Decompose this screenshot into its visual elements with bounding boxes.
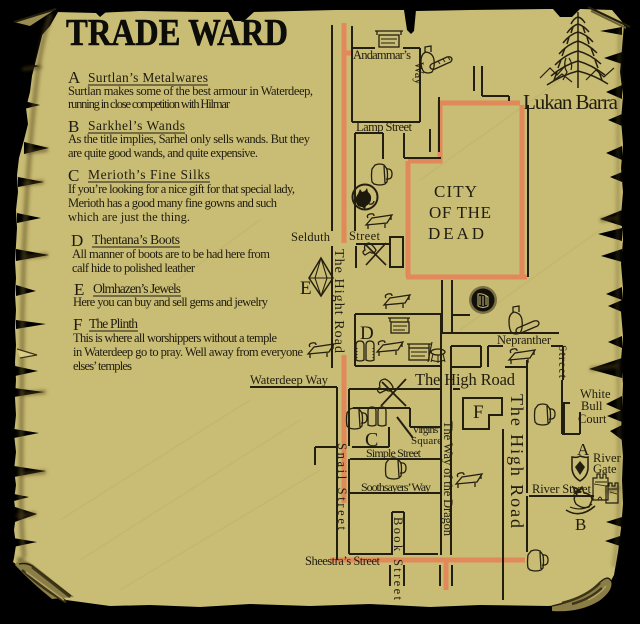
svg-text:Surtlan makes some of the best: Surtlan makes some of the best armour in… xyxy=(68,84,313,98)
svg-text:Waterdeep Way: Waterdeep Way xyxy=(250,373,329,387)
svg-text:elses’ temples: elses’ temples xyxy=(73,359,132,373)
svg-text:Selduth: Selduth xyxy=(291,230,331,244)
svg-text:Thentana’s Boots: Thentana’s Boots xyxy=(92,232,180,247)
svg-text:running in close competition w: running in close competition with Hilmar xyxy=(68,97,231,111)
svg-text:Lukan Barra: Lukan Barra xyxy=(523,90,619,114)
svg-text:TRADE WARD: TRADE WARD xyxy=(66,12,288,54)
svg-text:Nepranther: Nepranther xyxy=(497,333,552,347)
svg-text:Sheestra’s Street: Sheestra’s Street xyxy=(305,554,381,568)
svg-text:which are just the thing.: which are just the thing. xyxy=(68,210,190,224)
svg-text:Way: Way xyxy=(412,62,426,85)
svg-text:Soothsayers’ Way: Soothsayers’ Way xyxy=(361,480,431,494)
svg-text:Merioth’s Fine Silks: Merioth’s Fine Silks xyxy=(88,167,210,182)
svg-text:Court: Court xyxy=(578,412,607,426)
svg-text:are quite good wands, and quit: are quite good wands, and quite expensiv… xyxy=(68,146,258,160)
svg-text:Andammar’s: Andammar’s xyxy=(353,48,411,62)
svg-text:CITY: CITY xyxy=(434,182,478,201)
svg-text:DEAD: DEAD xyxy=(428,224,485,243)
svg-text:Olmhazen’s Jewels: Olmhazen’s Jewels xyxy=(93,281,181,296)
svg-text:All manner of boots are to be: All manner of boots are to be had here f… xyxy=(72,247,270,261)
svg-text:B: B xyxy=(575,515,586,534)
svg-text:Merioth has a good many fine g: Merioth has a good many fine gowns and s… xyxy=(68,196,278,210)
svg-text:Street: Street xyxy=(349,229,381,243)
svg-text:calf hide to polished leather: calf hide to polished leather xyxy=(72,261,196,275)
svg-text:Book Street: Book Street xyxy=(391,517,405,601)
svg-text:E: E xyxy=(300,278,312,299)
svg-text:As the title implies, Sarhel o: As the title implies, Sarhel only sells … xyxy=(68,132,311,146)
svg-text:F: F xyxy=(473,402,484,423)
svg-text:Surtlan’s Metalwares: Surtlan’s Metalwares xyxy=(88,70,208,85)
svg-text:C: C xyxy=(365,429,378,451)
svg-text:This is where all worshippers: This is where all worshippers without a … xyxy=(73,331,277,345)
svg-text:If you’re looking for a nice g: If you’re looking for a nice gift for th… xyxy=(68,182,295,196)
svg-text:The Hight Road: The Hight Road xyxy=(331,249,346,353)
svg-text:Snail Street: Snail Street xyxy=(335,443,349,531)
svg-text:OF THE: OF THE xyxy=(429,203,492,222)
svg-text:The High Road: The High Road xyxy=(415,370,516,389)
svg-text:The Plinth: The Plinth xyxy=(89,316,138,331)
svg-text:in Waterdeep go to pray. Well: in Waterdeep go to pray. Well away from … xyxy=(73,345,303,359)
svg-text:The Way of the Dragon: The Way of the Dragon xyxy=(441,421,455,537)
svg-text:Sarkhel’s Wands: Sarkhel’s Wands xyxy=(88,118,185,133)
svg-text:Lamp Street: Lamp Street xyxy=(356,120,413,134)
svg-text:Bull: Bull xyxy=(581,399,603,413)
svg-text:Here you can buy and sell gems: Here you can buy and sell gems and jewel… xyxy=(73,295,269,309)
